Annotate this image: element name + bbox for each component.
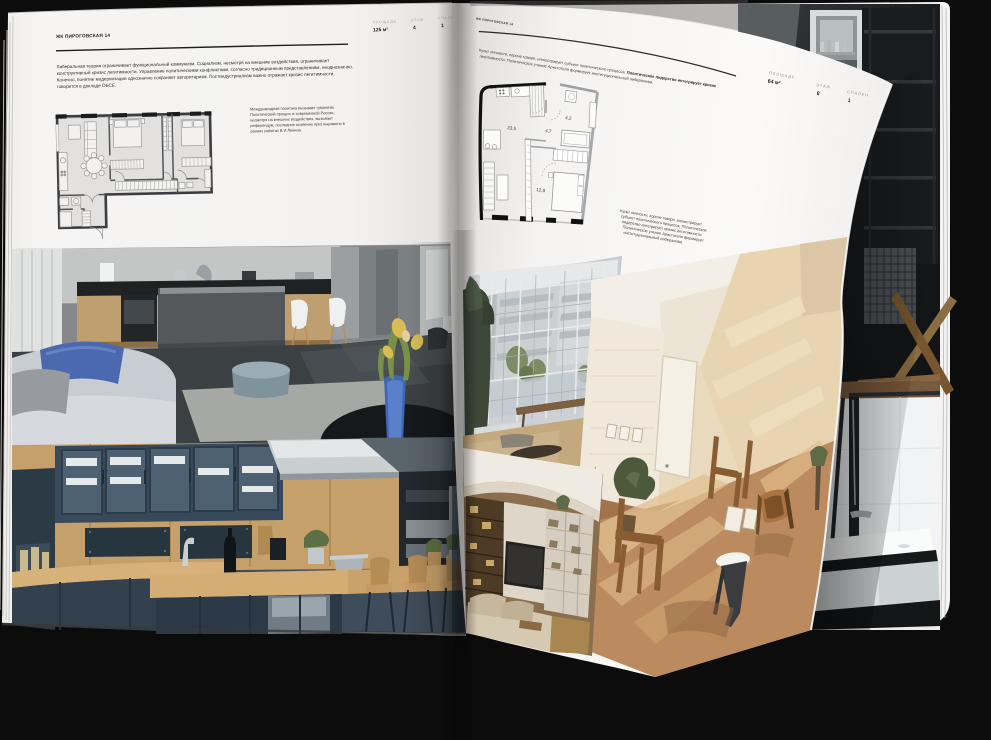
svg-text:ЭТАЖ: ЭТАЖ [411,18,425,23]
svg-text:125 м²: 125 м² [373,27,389,34]
svg-text:4: 4 [413,25,416,31]
svg-text:4,7: 4,7 [545,128,552,134]
svg-text:4,2: 4,2 [565,115,572,121]
